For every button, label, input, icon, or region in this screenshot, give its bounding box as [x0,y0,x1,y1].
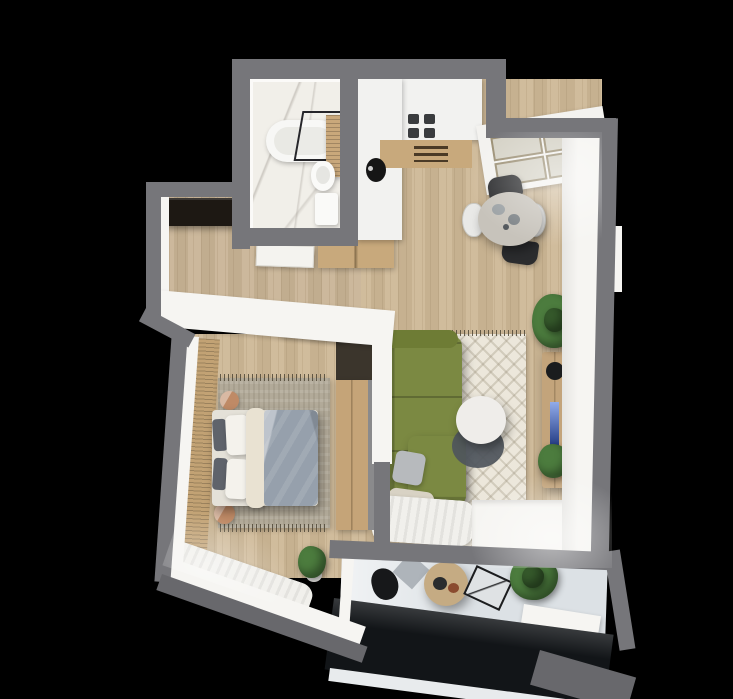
sofa-armrest [382,330,458,348]
toilet-lid [316,166,330,184]
dining-cup [503,224,509,230]
wardrobe [336,380,368,530]
bed-blanket [246,408,266,508]
balcony-plate-brown [448,583,459,593]
bathroom-door-open [256,244,315,268]
bedroom-right-wall-face [372,334,392,464]
coffee-table [456,396,506,444]
bedside-table-top [220,391,239,410]
wall-bathroom-left [232,59,250,249]
dining-plate [492,204,505,215]
floorplan-stage [0,0,733,699]
kitchen-sink-tap [368,166,373,171]
bathroom-cabinet [315,193,338,225]
sofa-pillow [391,450,426,487]
bedroom-rug-fringe-top [220,374,328,381]
wall-top-right [486,118,616,138]
kitchen-vent [414,146,448,162]
wall-bathroom-right [340,59,358,246]
hob-burner [408,114,419,124]
wall-top-step [486,59,506,127]
hob-burner [424,128,435,138]
bedroom-rug-fringe-bottom [220,524,328,532]
bedside-table-bottom [214,503,235,524]
wall-bathroom-bottom [232,228,358,246]
apartment-floorplan [0,0,733,699]
wall-hall-top [146,182,248,197]
wall-top [232,59,506,79]
bed-duvet [264,410,318,506]
kitchen-hob [408,114,438,140]
hob-burner [408,128,419,138]
balcony-plate-dark [433,577,447,590]
entry-closet [164,198,242,226]
hob-burner [424,114,435,124]
dining-plate [508,214,520,225]
bed [212,410,318,506]
wall-left-upper [146,182,161,318]
bedroom-living-wall-lower [374,462,390,546]
